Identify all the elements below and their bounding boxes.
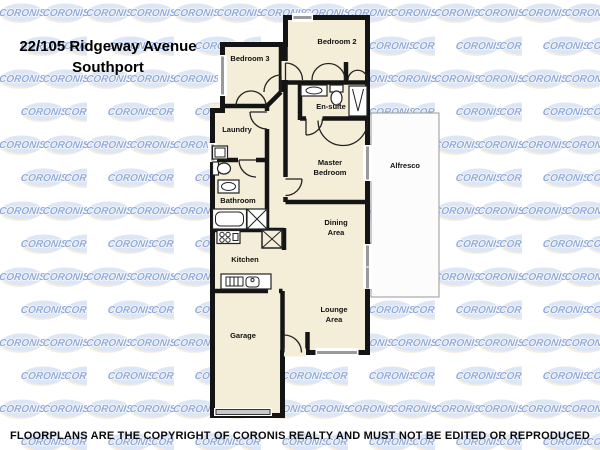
- room-label-master-2: Bedroom: [314, 168, 347, 177]
- room-label-bedroom2: Bedroom 2: [317, 37, 356, 46]
- laundry-tub-icon: [213, 146, 228, 159]
- ensuite-shower-icon: [349, 86, 367, 116]
- floorplan-page: CORONIS: [0, 0, 600, 450]
- bathtub-icon: [213, 209, 247, 229]
- address-line-1: 22/105 Ridgeway Avenue: [8, 36, 208, 57]
- kitchen-sink-icon: [221, 274, 271, 289]
- property-address: 22/105 Ridgeway Avenue Southport: [8, 36, 208, 78]
- room-label-ensuite: En-suite: [316, 102, 346, 111]
- bathroom-toilet-icon: [213, 162, 231, 175]
- room-label-laundry: Laundry: [222, 125, 252, 134]
- room-label-garage: Garage: [230, 331, 256, 340]
- room-label-master-1: Master: [318, 158, 342, 167]
- pantry-icon: [262, 230, 282, 248]
- copyright-notice: FLOORPLANS ARE THE COPYRIGHT OF CORONIS …: [0, 430, 600, 442]
- room-label-dining-1: Dining: [324, 218, 348, 227]
- ensuite-vanity-icon: [301, 85, 327, 96]
- room-label-lounge-1: Lounge: [320, 305, 347, 314]
- room-label-lounge-2: Area: [326, 315, 344, 324]
- garage-door: [214, 408, 272, 416]
- bathroom-shower-icon: [247, 209, 267, 229]
- room-label-bedroom3: Bedroom 3: [230, 54, 269, 63]
- room-label-alfresco: Alfresco: [390, 161, 420, 170]
- room-label-kitchen: Kitchen: [231, 255, 259, 264]
- bathroom-vanity-icon: [218, 180, 239, 193]
- alfresco-area: [371, 113, 439, 297]
- address-line-2: Southport: [8, 57, 208, 78]
- room-label-bathroom: Bathroom: [220, 196, 256, 205]
- cooktop-icon: [217, 231, 240, 244]
- room-label-dining-2: Area: [328, 228, 346, 237]
